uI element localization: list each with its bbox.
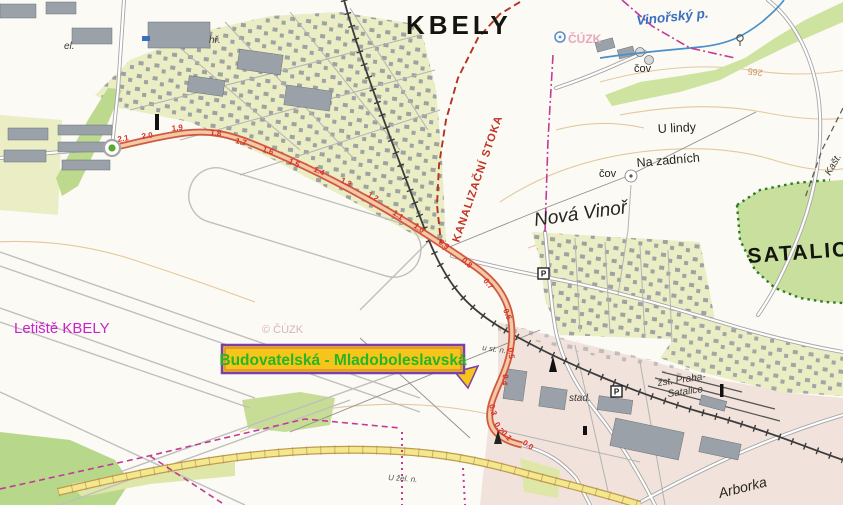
parking-icon: P — [611, 386, 622, 397]
parking-icon: P — [538, 268, 549, 279]
chainage-marker: 0.4 — [500, 374, 510, 386]
chimney-icon — [720, 384, 724, 397]
cov-label-top: čov — [634, 63, 652, 75]
chainage-marker: 1.9 — [171, 123, 184, 133]
cuzk-watermark-center: © ČÚZK — [262, 323, 304, 336]
cuzk-watermark-top: ČÚZK — [568, 31, 602, 46]
chainage-marker: 2.0 — [141, 130, 154, 141]
town-label-kbely: KBELY — [406, 10, 512, 40]
el-label: el. — [64, 41, 75, 52]
chimney-icon — [155, 114, 159, 130]
stadium-label: stad. — [569, 393, 591, 404]
chainage-marker: 0.5 — [506, 347, 516, 360]
blue-flag-icon — [142, 36, 150, 41]
cov-label-mid: čov — [599, 168, 617, 180]
route-name-label: Budovatelská - Mladoboleslavská — [219, 352, 467, 369]
contour-label-265: 265 — [747, 66, 763, 78]
topographic-map: P P 2.12.01.91.81.71.61.51.41.31.21.11.0… — [0, 0, 843, 505]
field-label-u-lindy: U lindy — [657, 120, 697, 136]
svg-text:P: P — [614, 388, 620, 397]
airport-label: Letiště KBELY — [14, 320, 110, 337]
svg-text:P: P — [541, 270, 547, 279]
map-canvas: P P 2.12.01.91.81.71.61.51.41.31.21.11.0… — [0, 0, 843, 505]
chimney-icon — [583, 426, 587, 435]
chainage-marker: 1.8 — [210, 128, 223, 138]
hr-label: hř. — [209, 35, 221, 46]
